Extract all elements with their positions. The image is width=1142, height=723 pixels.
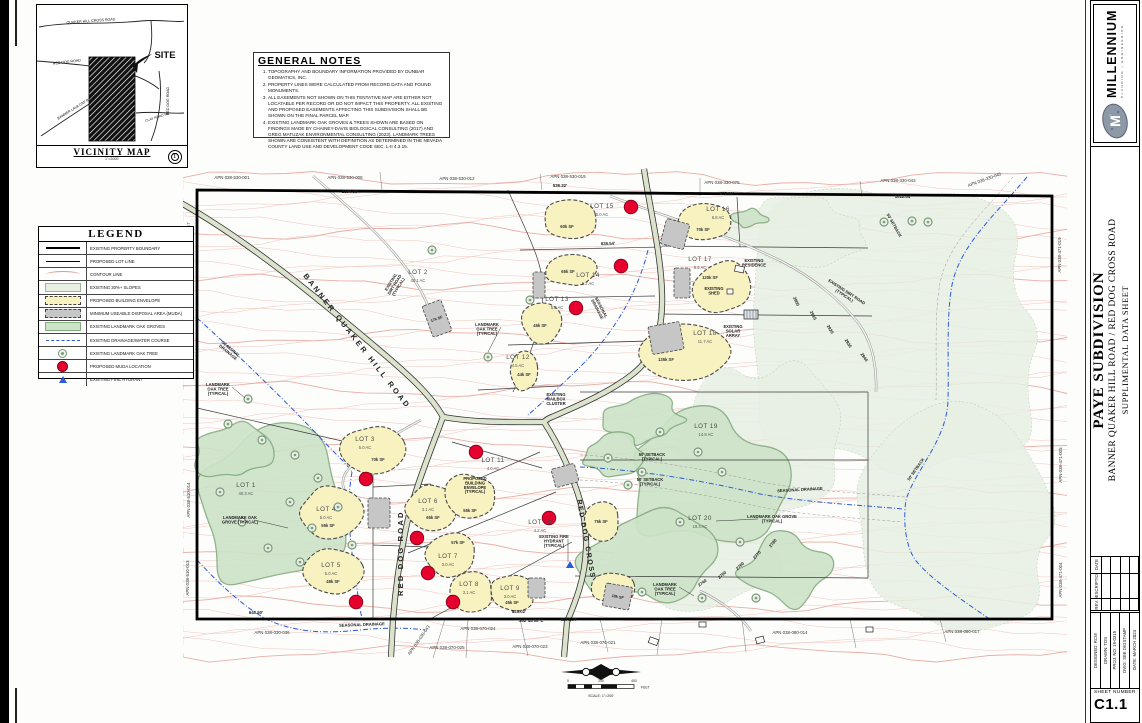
- muda-area: [674, 268, 690, 298]
- apn-label: APN 038-530-019: [550, 174, 586, 179]
- dimension-label: 536.32': [553, 183, 567, 188]
- legend-row: EXISTING PROPERTY BOUNDARY: [39, 242, 193, 255]
- apn-label: APN 038-471-004: [1058, 562, 1063, 598]
- lot-envelope-size: 48k SF: [326, 579, 340, 584]
- sheet-number-label: SHEET NUMBER: [1094, 690, 1136, 695]
- map-annotation: LANDMARKOAK TREE(TYPICAL): [206, 382, 230, 396]
- lot-name: LOT 3: [355, 436, 375, 443]
- dwg-ref: DWG: SEE DIGSTAMP: [1122, 628, 1127, 673]
- lot-area: 8.5 AC: [694, 265, 707, 270]
- lot-area: 11.7 AC: [698, 339, 713, 344]
- title-block: M MILLENNIUM PLANNING | ENGINEERING PAYE…: [1090, 0, 1140, 723]
- lot-name: LOT 2: [408, 269, 428, 276]
- lot-name: LOT 19: [694, 423, 718, 430]
- lot-envelope-size: 135k SF: [658, 357, 674, 362]
- lot-envelope-size: 45k SF: [505, 600, 519, 605]
- proposed-muda-dot: [349, 595, 363, 609]
- legend-row: EXISTING LANDMARK OAK GROVES: [39, 321, 193, 334]
- muda-symbol: [45, 309, 81, 318]
- legend-row: EXISTING LANDMARK OAK TREE: [39, 347, 193, 360]
- legend-row: PROPOSED MUDA LOCATION: [39, 360, 193, 373]
- map-annotation: 50' SETBACK(TYPICAL): [639, 452, 665, 461]
- vicinity-map: QUAKER HILL CROSS ROADRED DOG ROADBANNER…: [36, 4, 188, 168]
- site-label: SITE: [154, 50, 175, 61]
- hydrant-symbol: [59, 376, 67, 383]
- revision-table: DATE DESCRIPTION REV.: [1091, 557, 1139, 613]
- lot-name: LOT 6: [418, 498, 438, 505]
- legend-row: MINIMUM USEABLE DISPOSAL AREA (MUDA): [39, 308, 193, 321]
- lot-envelope-size: 75k SF: [594, 519, 608, 524]
- apn-label: APN 038-070-023: [512, 644, 548, 649]
- lot-area: 19.4 AC: [693, 524, 708, 529]
- dimension-label: 1012.04': [895, 194, 912, 199]
- dimension-label: 640.50': [249, 610, 263, 615]
- svg-text:M: M: [1107, 115, 1123, 127]
- designed-by: DESIGNED: RCW: [1093, 633, 1098, 668]
- muda-area: [533, 272, 545, 298]
- project-number: PROJ. NO: 19-0315: [1112, 631, 1117, 669]
- dimension-label: 2150.55': [342, 189, 359, 194]
- tree-symbol: [58, 349, 67, 358]
- map-annotation: LANDMARKOAK TREE(TYPICAL): [653, 582, 677, 596]
- lot-name: LOT 16: [706, 206, 730, 213]
- project-location: BANNER QUAKER HILL ROAD / RED DOG CROSS …: [1108, 148, 1120, 552]
- firm-subtitle: PLANNING | ENGINEERING: [1120, 10, 1124, 98]
- lot-area: 4.0 AC: [487, 466, 500, 471]
- site-area: [89, 57, 135, 141]
- apn-label: APN 038-030-036: [254, 630, 290, 635]
- legend: LEGEND EXISTING PROPERTY BOUNDARY PROPOS…: [38, 226, 194, 379]
- lot-envelope-size: 55k SF: [463, 508, 477, 513]
- map-annotation: EXISTINGRESIDENCE: [742, 258, 766, 267]
- lot-envelope-size: 65k SF: [561, 269, 575, 274]
- lot-area: 5.0 AC: [359, 445, 372, 450]
- scale-tick: 200: [598, 679, 604, 683]
- scale-tick: 0: [567, 679, 569, 683]
- legend-title: LEGEND: [39, 227, 193, 242]
- map-annotation: LANDMARK OAKGROVE (TYPICAL): [222, 515, 259, 524]
- lot-envelope-size: 57k SF: [451, 540, 465, 545]
- muda-area: [648, 321, 684, 354]
- apn-label: APN 038-530-001: [214, 175, 250, 180]
- legend-row: PROPOSED LOT LINE: [39, 255, 193, 268]
- apn-label: APN 038-070-025: [429, 645, 465, 650]
- lot-area: 6.8 AC: [712, 215, 725, 220]
- lot-name: LOT 8: [459, 581, 479, 588]
- lot-area: 4.2 AC: [534, 528, 547, 533]
- map-annotation: EXISTINGMAILBOXCLUSTER: [546, 392, 565, 406]
- page-edge-strip: [0, 0, 9, 723]
- lot-envelope-size: 60k SF: [560, 224, 574, 229]
- sheet-title-block: PAYE SUBDIVISION BANNER QUAKER HILL ROAD…: [1091, 147, 1139, 557]
- apn-label: APN 038-330-075: [704, 180, 740, 185]
- lot-name: LOT 15: [590, 203, 614, 210]
- lot-area: 5.0 AC: [320, 515, 333, 520]
- site-plan-map: 17k SF18k SFLOT 140.3 ACLOT 240.1 ACLOT …: [183, 163, 1085, 723]
- general-note: TOPOGRAPHY AND BOUNDARY INFORMATION PROV…: [268, 69, 444, 81]
- firm-logo-block: M MILLENNIUM PLANNING | ENGINEERING: [1091, 1, 1139, 147]
- fire-hydrant-icon: [566, 561, 574, 568]
- lot-name: LOT 7: [438, 553, 458, 560]
- apn-label: APN 038-530-008: [327, 175, 363, 180]
- muda-area: [528, 578, 545, 598]
- building-envelope: [545, 200, 596, 239]
- lot-area: 4.5 AC: [512, 363, 525, 368]
- legend-row: CONTOUR LINE: [39, 268, 193, 281]
- map-annotation: PROPOSEDBUILDINGENVELOPE(TYPICAL): [463, 476, 486, 494]
- muda-area: [368, 498, 390, 528]
- general-note: PROPERTY LINES WERE CALCULATED FROM RECO…: [268, 82, 444, 94]
- project-title: PAYE SUBDIVISION: [1091, 148, 1108, 552]
- plan-sheet: 17k SF18k SFLOT 140.3 ACLOT 240.1 ACLOT …: [0, 0, 1142, 723]
- lot-area: 5.0 AC: [596, 212, 609, 217]
- legend-row: EXISTING 30%+ SLOPES: [39, 281, 193, 294]
- lot-envelope-size: 55k SF: [321, 523, 335, 528]
- drawing-date: DATE: MARCH 2024: [1132, 630, 1137, 670]
- lot-area: 40.3 AC: [239, 491, 254, 496]
- lot-area: 3.0 AC: [442, 562, 455, 567]
- sheet-subtitle: SUPPLIMENTAL DATA SHEET: [1120, 148, 1131, 552]
- scale-tick: 400: [631, 679, 637, 683]
- general-notes: GENERAL NOTES TOPOGRAPHY AND BOUNDARY IN…: [253, 52, 450, 138]
- lot-area: 5.0 AC: [325, 571, 338, 576]
- lot-envelope-size: 70k SF: [371, 457, 385, 462]
- lot-name: LOT 4: [316, 506, 336, 513]
- lot-name: LOT 12: [506, 354, 530, 361]
- drawing-info-block: DESIGNED: RCW DRAWN: TDS PROJ. NO: 19-03…: [1091, 613, 1139, 689]
- dimension-label: 875.81': [720, 191, 734, 196]
- proposed-muda-dot: [446, 595, 460, 609]
- lot-name: LOT 18: [693, 330, 717, 337]
- lot-name: LOT 20: [688, 515, 712, 522]
- scale-bar: [568, 685, 634, 689]
- lot-name: LOT 9: [500, 585, 520, 592]
- lot-area: 3.0 AC: [504, 594, 517, 599]
- apn-label: APN 038-080-017: [944, 629, 980, 634]
- dimension-label: 838.54': [601, 241, 615, 246]
- lot-envelope-size: 65k SF: [426, 515, 440, 520]
- map-annotation: EXISTINGDIRT ROAD(TYPICAL): [383, 271, 407, 298]
- apn-label: APN 038-510-013: [185, 560, 190, 596]
- legend-row: PROPOSED BUILDING ENVELOPE: [39, 295, 193, 308]
- muda-dot-symbol: [57, 361, 68, 372]
- drawn-by: DRAWN: TDS: [1103, 637, 1108, 664]
- lot-name: LOT 17: [688, 256, 712, 263]
- lot-area: 40.1 AC: [411, 278, 426, 283]
- map-annotation: EXISTINGSOLARARRAY: [723, 324, 742, 338]
- grove-symbol: [45, 322, 81, 331]
- lot-name: LOT 1: [236, 482, 256, 489]
- lot-name: LOT 10: [528, 519, 552, 526]
- road-name-label: RED DOG ROAD: [396, 510, 405, 596]
- map-annotation: LANDMARKOAK TREE(TYPICAL): [475, 322, 499, 336]
- rev-header-rev: REV.: [1094, 600, 1099, 610]
- map-annotation: 50' SETBACK(TYPICAL): [637, 477, 663, 486]
- lot-envelope-size: 46k SF: [533, 323, 547, 328]
- proposed-muda-dot: [410, 531, 424, 545]
- lot-line-symbol: [46, 261, 80, 262]
- north-arrow: [561, 664, 641, 680]
- sheet-number: C1.1: [1094, 696, 1136, 713]
- page-edge-mark-bottom: [15, 688, 17, 723]
- drainage-symbol: [46, 340, 80, 341]
- vicinity-roads: QUAKER HILL CROSS ROADRED DOG ROADBANNER…: [37, 5, 184, 144]
- general-notes-title: GENERAL NOTES: [258, 55, 444, 67]
- apn-label: APN 038-530-012: [439, 176, 475, 181]
- lot-name: LOT 5: [321, 562, 341, 569]
- firm-name: MILLENNIUM: [1106, 10, 1119, 98]
- map-annotation: SEASONALDRAINAGE: [590, 296, 609, 321]
- apn-label: APN 038-471-005: [1058, 447, 1063, 483]
- scale-label: SCALE: 1"=200': [588, 694, 614, 698]
- lot-envelope-size: 120k SF: [702, 275, 718, 280]
- legend-row: EXISTING DRAINAGE/WATER COURSE: [39, 334, 193, 347]
- lot-area: 3.1 AC: [422, 507, 435, 512]
- rev-header-date: DATE: [1094, 559, 1099, 570]
- surveyor-stamp-icon: [168, 150, 182, 164]
- apn-label: APN 038-471-019: [1057, 237, 1062, 273]
- dimension-label: 5273.34': [561, 617, 578, 622]
- map-annotation: SEASONAL DRAINAGE: [339, 621, 385, 628]
- envelope-symbol: [45, 296, 81, 305]
- proposed-muda-dot: [421, 566, 435, 580]
- fire-hydrant-symbols: [566, 561, 574, 568]
- stone-logo-icon: M: [1095, 101, 1135, 141]
- lot-name: LOT 14: [576, 272, 600, 279]
- apn-label: APN 038-070-021: [580, 640, 616, 645]
- apn-label: APN 038-070-024: [460, 626, 496, 631]
- lot-envelope-size: 70k SF: [696, 227, 710, 232]
- lot-area: 5.2 AC: [582, 281, 595, 286]
- vicinity-footer: VICINITY MAP 1"=2000': [37, 145, 187, 167]
- apn-label: APN 038-330-043: [880, 178, 916, 183]
- proposed-muda-dot: [614, 259, 628, 273]
- lot-area: 5.0 AC: [551, 305, 564, 310]
- scale-unit: FEET: [641, 686, 650, 690]
- general-note: ALL EASEMENTS NOT SHOWN ON THIS TENTATIV…: [268, 95, 444, 119]
- proposed-muda-dot: [359, 472, 373, 486]
- contour-symbol: [46, 271, 80, 278]
- dimension-label: S62°48'08"E: [519, 618, 544, 623]
- apn-label: APN 038-510-014: [186, 482, 191, 518]
- rev-header-description: DESCRIPTION: [1094, 574, 1099, 599]
- legend-row: EXISTING FIRE HYDRANT: [39, 373, 193, 385]
- lot-area: 3.1 AC: [463, 590, 476, 595]
- lot-envelope-size: 44k SF: [517, 372, 531, 377]
- general-note: EXISTING LANDMARK OAK GROVES & TREES SHO…: [268, 120, 444, 150]
- slopes-symbol: [45, 283, 81, 292]
- sheet-number-block: SHEET NUMBER C1.1: [1091, 689, 1139, 722]
- apn-label: APN 038-080-014: [772, 630, 808, 635]
- dimension-label: 823.02': [512, 609, 526, 614]
- lot-name: LOT 11: [481, 457, 504, 464]
- proposed-muda-dot: [624, 200, 638, 214]
- vicinity-scale: 1"=2000': [37, 157, 187, 161]
- titleblock-divider: [1085, 0, 1086, 723]
- page-edge-mark-top: [15, 0, 17, 46]
- lot-name: LOT 13: [545, 296, 569, 303]
- vicinity-title: VICINITY MAP: [37, 147, 187, 157]
- boundary-symbol: [46, 247, 80, 249]
- lot-area: 14.9 AC: [699, 432, 714, 437]
- proposed-muda-dot: [569, 301, 583, 315]
